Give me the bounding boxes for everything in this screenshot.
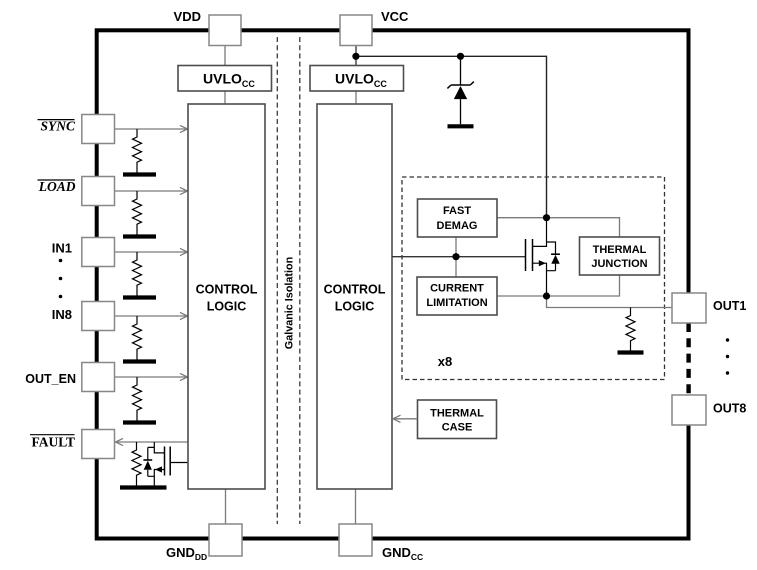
svg-text:CONTROL: CONTROL [324,283,386,297]
svg-text:CONTROL: CONTROL [196,283,258,297]
svg-text:CURRENT: CURRENT [430,282,484,294]
svg-text:FAST: FAST [443,205,471,217]
svg-text:LOGIC: LOGIC [335,300,375,314]
svg-text:VDD: VDD [174,9,201,24]
svg-text:JUNCTION: JUNCTION [591,258,647,270]
svg-text:OUT1: OUT1 [713,299,746,313]
svg-text:LOAD: LOAD [38,179,76,194]
svg-text:OUT_EN: OUT_EN [25,372,76,386]
svg-text:OUT8: OUT8 [713,402,746,416]
svg-text:FAULT: FAULT [31,434,75,449]
svg-text:LOGIC: LOGIC [207,300,247,314]
svg-text:CASE: CASE [442,422,473,434]
svg-text:LIMITATION: LIMITATION [426,297,487,309]
svg-text:DEMAG: DEMAG [437,220,478,232]
svg-text:THERMAL: THERMAL [430,407,484,419]
svg-text:IN1: IN1 [52,240,72,255]
svg-text:SYNC: SYNC [40,119,76,134]
svg-text:IN8: IN8 [52,307,72,322]
svg-text:VCC: VCC [381,9,409,24]
svg-text:x8: x8 [438,354,452,369]
svg-text:THERMAL: THERMAL [593,244,647,256]
svg-text:Galvanic Isolation: Galvanic Isolation [283,257,295,349]
